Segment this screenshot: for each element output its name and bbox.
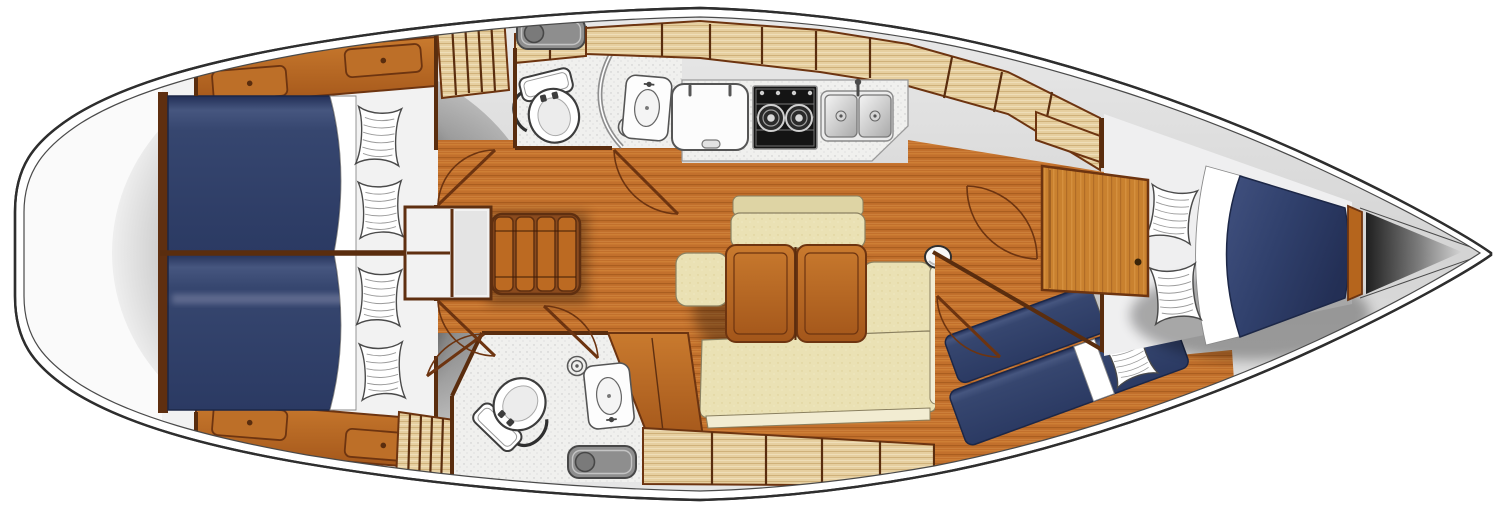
fridge-lid — [672, 84, 748, 150]
bow-frame — [1348, 206, 1362, 300]
engine-panel — [455, 211, 487, 295]
washbasin — [621, 74, 672, 141]
pillow — [356, 107, 402, 166]
berth-port — [168, 96, 341, 253]
settee-bottom — [700, 331, 936, 418]
berth-headboard — [158, 92, 168, 256]
faucet-knob — [855, 79, 861, 85]
saloon-table — [726, 245, 866, 342]
pillow — [1150, 263, 1201, 324]
bench-seat — [731, 213, 865, 248]
galley — [672, 79, 908, 161]
deck-hatch-starboard — [568, 446, 636, 478]
pillow — [359, 342, 405, 400]
burner — [758, 105, 784, 131]
berth-highlight — [172, 294, 348, 304]
burner — [786, 105, 812, 131]
table-leaf-left — [726, 245, 795, 342]
washbasin — [583, 362, 635, 430]
pillow — [357, 268, 402, 326]
stool — [676, 253, 728, 306]
door-handle — [1135, 259, 1142, 266]
floor-plan-svg — [0, 0, 1500, 508]
forward-cabin-door — [1042, 166, 1148, 296]
yacht-floor-plan — [0, 0, 1500, 508]
pillow — [358, 181, 403, 239]
table-leaf-right — [797, 245, 866, 342]
berth-starboard — [168, 253, 341, 410]
berth-headboard — [158, 253, 168, 413]
stove — [753, 86, 817, 149]
